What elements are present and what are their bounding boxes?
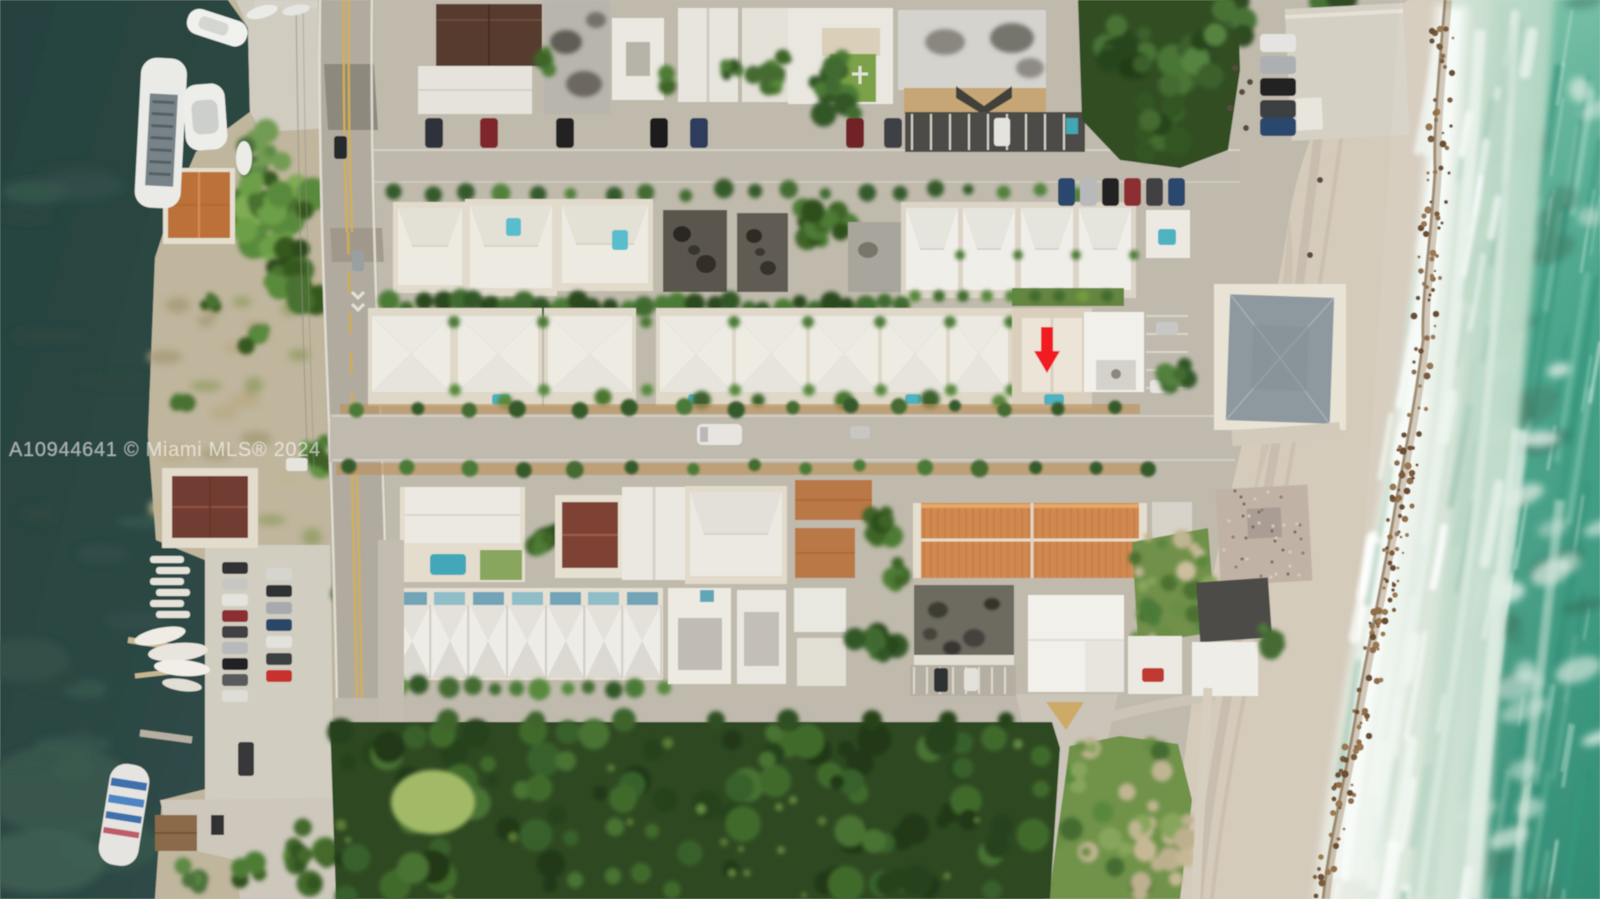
svg-text:A10944641 © Miami MLS® 2024: A10944641 © Miami MLS® 2024 [9, 439, 321, 461]
